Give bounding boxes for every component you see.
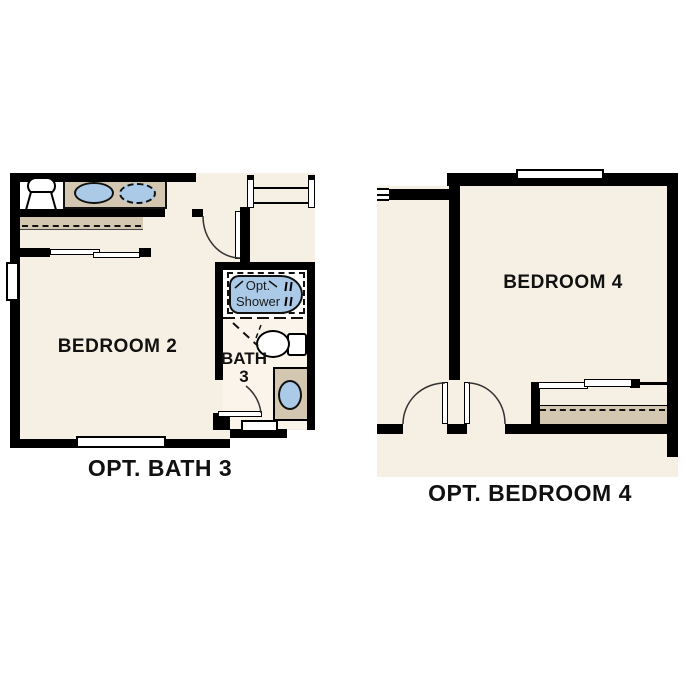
shower-label: Opt. Shower [229,278,287,311]
optional-dashed-mark [233,323,258,346]
shower-label-line2: Shower [229,294,287,310]
optional-dashed-mark [256,325,261,338]
door-swing-arc [203,216,240,258]
shower-label-line1: Opt. [229,278,287,294]
door-swing-arc [468,383,505,424]
door-swing-arc [246,386,261,413]
bedroom4-label: BEDROOM 4 [480,273,646,293]
right-plan-caption: OPT. BEDROOM 4 [390,481,670,505]
bath3-label-line2: 3 [217,368,271,386]
door-swing-arc [403,383,445,424]
bath3-label-line1: BATH [217,350,271,368]
floorplan-canvas: Opt. Shower BEDROOM 2 BATH 3 OPT. BATH 3… [0,0,687,687]
bedroom2-label: BEDROOM 2 [40,337,195,357]
bath3-label: BATH 3 [217,350,271,386]
left-plan-caption: OPT. BATH 3 [40,456,280,480]
toilet-base [26,192,56,210]
